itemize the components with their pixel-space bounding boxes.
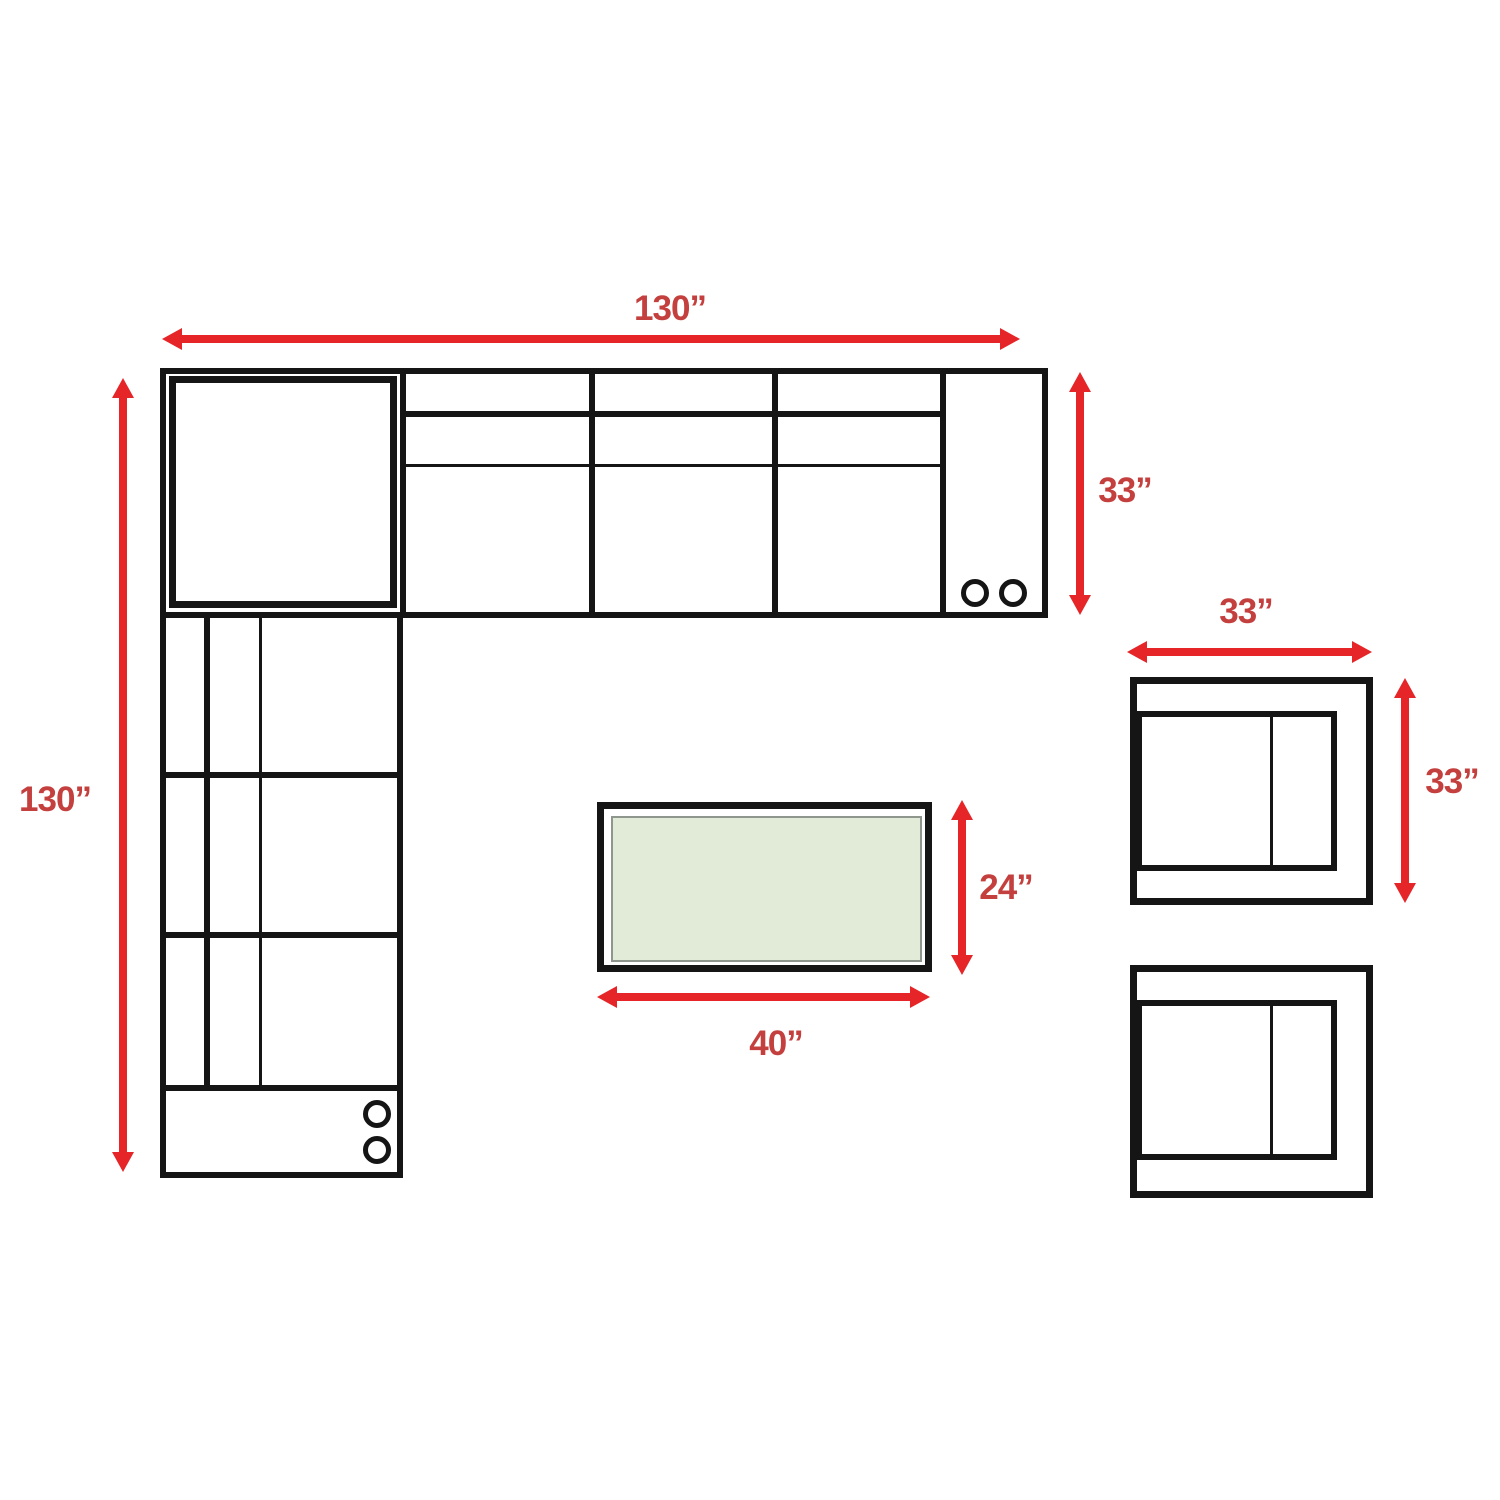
cupholder-icon — [363, 1100, 391, 1128]
floor-plan-diagram: 130” 130” 33” 33” 33” 24” 40” — [0, 0, 1500, 1500]
sectional-width-dimension-label: 130” — [570, 291, 770, 327]
table-width-dimension-label: 40” — [726, 1026, 826, 1062]
armchair-1-seat — [1136, 711, 1337, 871]
armrest-divider-line — [940, 368, 946, 618]
seat-divider-line — [160, 932, 403, 938]
table-width-dimension-arrow — [597, 986, 930, 1008]
armchair-depth-dimension-label: 33” — [1402, 764, 1500, 800]
seat-divider-line — [160, 772, 403, 778]
sectional-left-section — [160, 612, 403, 1178]
sectional-corner-wedge — [169, 376, 397, 608]
backrest-band-line — [403, 411, 943, 417]
backrest-band-line — [204, 618, 210, 1091]
seat-divider-line — [772, 368, 778, 618]
sectional-width-dimension-arrow — [162, 328, 1020, 350]
coffee-table-glass-top — [611, 816, 922, 962]
armrest-divider-line — [160, 1085, 403, 1091]
armchair-width-dimension-label: 33” — [1196, 594, 1296, 630]
cupholder-icon — [363, 1136, 391, 1164]
backrest-band-line — [403, 464, 943, 467]
armchair-2-seat-divider-line — [1270, 1006, 1273, 1154]
cupholder-icon — [999, 579, 1027, 607]
sectional-height-dimension-arrow — [112, 378, 134, 1172]
armchair-1-seat-divider-line — [1270, 717, 1273, 865]
armchair-width-dimension-arrow — [1127, 641, 1372, 663]
cupholder-icon — [961, 579, 989, 607]
sectional-height-dimension-label: 130” — [5, 782, 105, 818]
sectional-depth-dimension-label: 33” — [1075, 473, 1175, 509]
table-depth-dimension-label: 24” — [956, 870, 1056, 906]
armchair-2-seat — [1136, 1000, 1337, 1160]
seat-divider-line — [589, 368, 595, 618]
seat-divider-line — [400, 368, 406, 618]
backrest-band-line — [259, 618, 262, 1091]
